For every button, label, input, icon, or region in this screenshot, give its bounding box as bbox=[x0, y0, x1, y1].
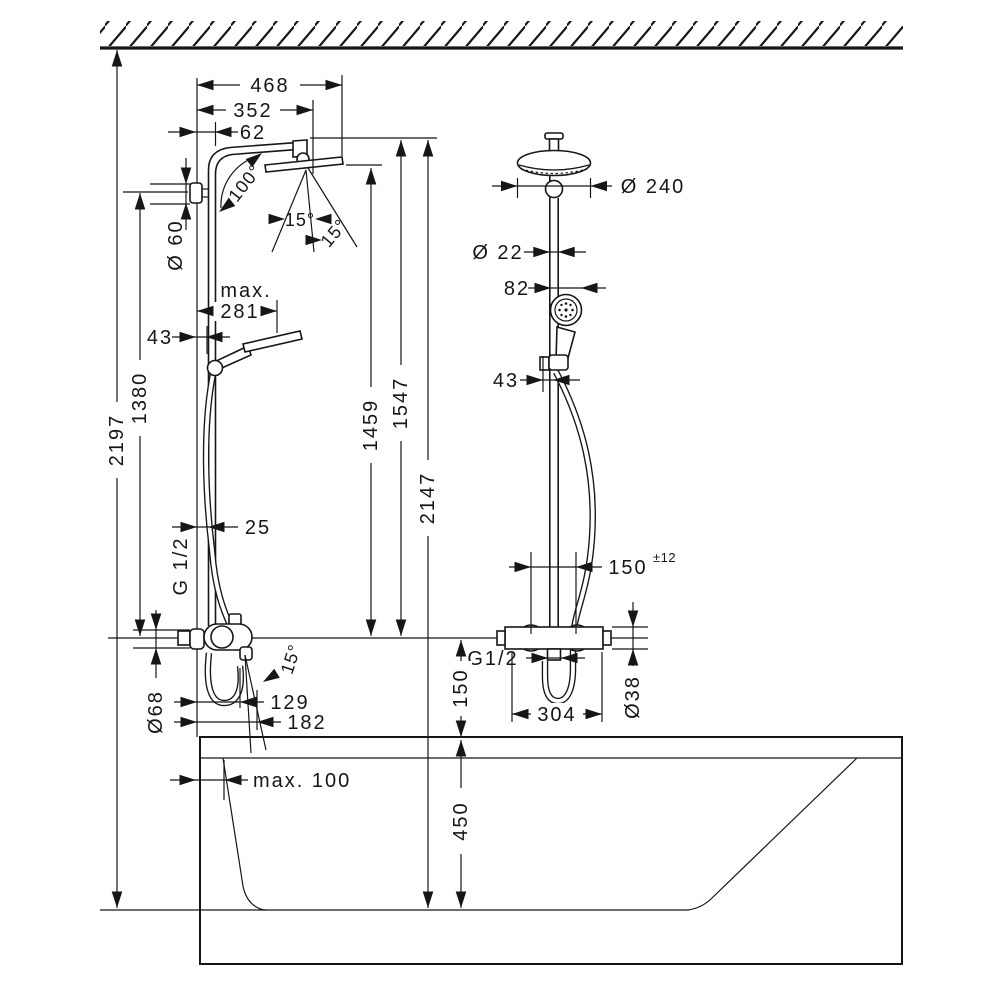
angle-15a-label: 15° bbox=[285, 210, 315, 230]
dim-43-left: 43 bbox=[147, 327, 230, 349]
dim-max100-label: max. 100 bbox=[253, 770, 351, 792]
dim-352-label: 352 bbox=[233, 100, 272, 122]
dim-304-label: 304 bbox=[537, 704, 576, 726]
dim-281-label: 281 bbox=[220, 301, 259, 323]
dim-1547-label: 1547 bbox=[390, 377, 412, 430]
left-bath-mixer bbox=[178, 614, 266, 753]
dim-2147-label: 2147 bbox=[417, 472, 439, 525]
dim-82: 82 bbox=[504, 278, 606, 300]
left-riser-outer bbox=[209, 143, 294, 626]
dim-25: 25 bbox=[172, 517, 271, 539]
right-showerpipe bbox=[497, 133, 611, 701]
dim-43-left-label: 43 bbox=[147, 327, 173, 349]
dim-1380: 1380 bbox=[129, 193, 151, 636]
ceiling-hatch bbox=[100, 21, 903, 48]
angle-100-label: 100° bbox=[224, 161, 265, 206]
dim-182-label: 182 bbox=[287, 712, 326, 734]
dim-2147: 2147 bbox=[417, 140, 439, 908]
mixer-handle bbox=[211, 626, 233, 648]
dim-468-label: 468 bbox=[250, 75, 289, 97]
dim-150h-tolerance-label: ±12 bbox=[653, 550, 676, 565]
dim-352: 352 bbox=[197, 99, 313, 122]
dim-1547: 1547 bbox=[390, 140, 412, 636]
thread-g12-right-label: G1/2 bbox=[467, 648, 518, 670]
dim-62-label: 62 bbox=[240, 122, 266, 144]
dim-2197: 2197 bbox=[106, 50, 128, 908]
dim-129-label: 129 bbox=[270, 692, 309, 714]
dim-max-label: max. bbox=[220, 280, 271, 302]
supply-stub bbox=[178, 631, 190, 645]
dim-150v-label: 150 bbox=[450, 668, 472, 707]
dome-ball-joint bbox=[546, 181, 563, 198]
handshower-holder bbox=[549, 355, 568, 370]
dia-60-label: Ø 60 bbox=[165, 219, 187, 270]
mixer-escutcheon bbox=[190, 629, 204, 649]
dim-dia-38: Ø38 bbox=[622, 602, 644, 728]
left-riser-inner bbox=[216, 150, 294, 626]
dim-dia-240: Ø 240 bbox=[492, 176, 685, 198]
dia-22-label: Ø 22 bbox=[472, 242, 523, 264]
right-overhead-shower bbox=[518, 133, 591, 198]
dim-1459-label: 1459 bbox=[360, 399, 382, 452]
dia-240-label: Ø 240 bbox=[621, 176, 685, 198]
dim-angle-15-spout: 15° bbox=[260, 642, 305, 687]
technical-drawing-page: 468 352 62 100° 15° bbox=[0, 0, 1000, 1000]
thread-g12-left-label: G 1/2 bbox=[170, 537, 192, 596]
dim-129: 129 bbox=[174, 692, 310, 714]
dim-62: 62 bbox=[168, 122, 266, 144]
holder-clamp bbox=[540, 357, 549, 370]
right-handshower bbox=[540, 295, 582, 371]
dim-450-label: 450 bbox=[450, 801, 472, 840]
dim-1380-label: 1380 bbox=[129, 372, 151, 425]
dim-1459: 1459 bbox=[360, 168, 382, 636]
dim-150h-label: 150 bbox=[608, 557, 647, 579]
dim-43-right-label: 43 bbox=[493, 370, 519, 392]
dim-82-label: 82 bbox=[504, 278, 530, 300]
dim-dia-60: Ø 60 bbox=[165, 158, 191, 271]
dim-2197-label: 2197 bbox=[106, 414, 128, 467]
dim-25-label: 25 bbox=[245, 517, 271, 539]
dim-max-100: max. 100 bbox=[170, 770, 351, 792]
dim-468: 468 bbox=[197, 73, 342, 97]
dim-angle-100: 100° bbox=[216, 149, 266, 216]
dim-g12-right: G1/2 bbox=[467, 648, 585, 670]
dim-304: 304 bbox=[512, 703, 602, 726]
dimensions: 468 352 62 100° 15° bbox=[106, 50, 685, 908]
dim-450: 450 bbox=[450, 740, 472, 908]
wall-bracket-escutcheon bbox=[190, 183, 202, 203]
dim-dia-22: Ø 22 bbox=[472, 242, 586, 264]
angle-15-spout-label: 15° bbox=[277, 642, 305, 677]
left-hose bbox=[206, 374, 231, 627]
shower-installation-diagram: 468 352 62 100° 15° bbox=[0, 0, 1000, 1000]
dia-68-label: Ø68 bbox=[145, 690, 167, 734]
reference-lines bbox=[100, 78, 648, 910]
dia-38-label: Ø38 bbox=[622, 675, 644, 719]
